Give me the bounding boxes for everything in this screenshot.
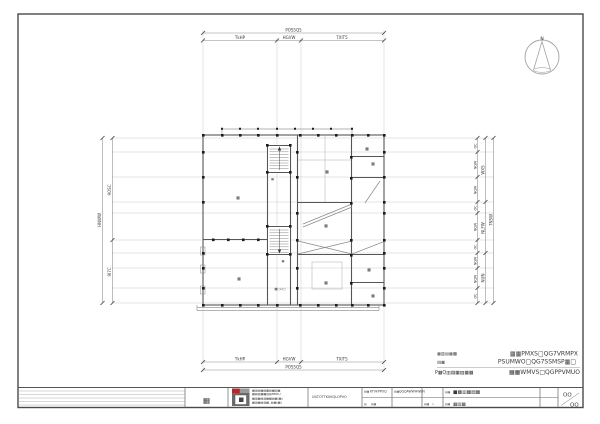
dim-left-seg2: 9I7C: [107, 267, 112, 276]
room-label: ▦: [324, 280, 328, 285]
room-labels: ▦ ▦ ▦ ▦ ▦ ▦ ▦ ▦ ▦ ▦ ▦ ▦□▫□: [236, 146, 375, 298]
drawing-no-label: ▤▦: [445, 402, 451, 406]
dim-right-i9: OC: [474, 293, 478, 299]
dim-left-seg1: 9OSC: [107, 184, 112, 195]
north-arrow-icon: N: [525, 36, 559, 74]
dim-left-total: HNWW: [97, 213, 102, 227]
notes-block: ▦▥▤▦▩ ▦▦PMXS□QG7VRMPX ▤▦ PSUMWO□QG7SSMSP…: [435, 351, 580, 377]
field-2-value: QQQAWWHWEN: [399, 390, 425, 394]
dim-bottom-total: POS5Q5: [285, 365, 302, 370]
room-label: ▦: [371, 161, 375, 166]
dim-right-m2: NLFW: [481, 222, 486, 234]
stair-up-label: ▦: [271, 177, 274, 181]
grid-lines: [112, 30, 494, 372]
dim-right-i3: NQW: [474, 185, 478, 194]
note-label-1: ▦▥▤▦▩: [437, 351, 457, 356]
firm-line-2: ▦▤▨▦▦▥▤MPRU: [252, 392, 281, 396]
drawing-name-label: ▤▦: [445, 390, 451, 394]
drawing-name-value: ■▦▥▦▤▦: [453, 390, 481, 396]
note-label-2: ▤▦: [437, 360, 445, 365]
dim-right-i6: OC: [474, 244, 478, 250]
plan-walls: [203, 135, 384, 305]
project-code: UILTOTTKUKQLOPVO: [312, 395, 347, 399]
plan-columns: [202, 128, 386, 307]
stair-door-label: ▦□▫□: [274, 287, 285, 291]
room-label: ▦: [236, 195, 240, 200]
staircase-upper: [268, 146, 291, 173]
note-value-1: ▦▦PMXS□QG7VRMPX: [510, 351, 578, 358]
dim-bottom-seg2: HGVW: [283, 357, 296, 362]
sheet-number-cell: OO OO: [561, 393, 579, 409]
note-value-2: PSUMWO□QG7SSMSP▦□: [498, 359, 576, 366]
dim-right-m3: NUN: [481, 274, 486, 283]
field-4-label: ▤▦: [424, 402, 430, 406]
title-block: ▦ ▦▥▤▦▨▩▤▦▥▦ ▦▤▨▦▦▥▤MPRU ▦▥▦▤▨▦▦▤▦(▦) ▦▥…: [18, 388, 583, 409]
dim-top-total: POS5Q5: [285, 28, 302, 33]
field-1-value: KTVkPPOQ: [370, 390, 387, 394]
dim-right-i1: OC: [474, 143, 478, 149]
note-label-3: P▦Q▥▤▦▨▦▦: [435, 370, 474, 376]
stair-down-label: ▦: [282, 259, 285, 263]
room-label: ▦: [324, 223, 328, 228]
signature-stamp: ▦: [203, 396, 210, 405]
sheet-number-bottom: OO: [570, 403, 579, 409]
room-label: ▦: [367, 267, 371, 272]
field-3-label: ▤: [364, 402, 367, 406]
dim-right-i2: NQW: [474, 160, 478, 169]
room-label: ▦: [237, 276, 241, 281]
firm-logo: [232, 389, 250, 407]
room-label: ▦: [371, 293, 375, 298]
dimension-labels: POS5Q5 TkHP HGVW TXlT5 TkHP HGVW TXlT5 P…: [97, 28, 494, 370]
dim-top-seg1: TkHP: [234, 35, 246, 40]
room-label: ▦: [365, 146, 369, 151]
note-value-3: ▦▦WMVS□QGPPVMUO: [509, 369, 580, 376]
dim-right-m1: WX5: [481, 165, 486, 175]
field-1-label: ▤▦: [364, 390, 370, 394]
sheet-number-top: OO: [563, 393, 572, 399]
dim-bottom-seg1: TkHP: [234, 357, 246, 362]
dim-right-i4: OC: [474, 205, 478, 211]
revision-table: [18, 391, 185, 405]
dim-right-total: 7NSW: [489, 214, 494, 226]
dim-top-seg3: TXlT5: [335, 35, 348, 40]
drawing-no-value: ▦▤▦: [453, 403, 466, 408]
dim-right-i5: NQW: [474, 222, 478, 231]
dim-bottom-seg3: TXlT5: [335, 357, 348, 362]
firm-text: ▦▥▤▦▨▩▤▦▥▦ ▦▤▨▦▦▥▤MPRU ▦▥▦▤▨▦▦▤▦(▦) ▦▥▦▤…: [252, 389, 283, 405]
cad-floorplan-canvas: N POS5Q5 TkHP HGVW TXlT5 TkHP HGVW TXlT5…: [0, 0, 600, 424]
room-label: ▦: [325, 169, 329, 174]
staircase-lower: [268, 227, 291, 255]
north-label: N: [540, 36, 543, 42]
dim-top-seg2: HGVW: [283, 35, 296, 40]
drawing-sheet: N POS5Q5 TkHP HGVW TXlT5 TkHP HGVW TXlT5…: [0, 0, 600, 424]
dim-right-i7: NQW: [474, 256, 478, 265]
plan-diagonals: [298, 181, 383, 254]
field-3-value: ▤▦: [371, 402, 377, 406]
firm-line-4: ▦▥▦▤▨▦..▤▦(▦): [252, 401, 282, 405]
field-4-value: ▫: [432, 402, 434, 406]
dim-right-i8: NQW: [474, 274, 478, 283]
